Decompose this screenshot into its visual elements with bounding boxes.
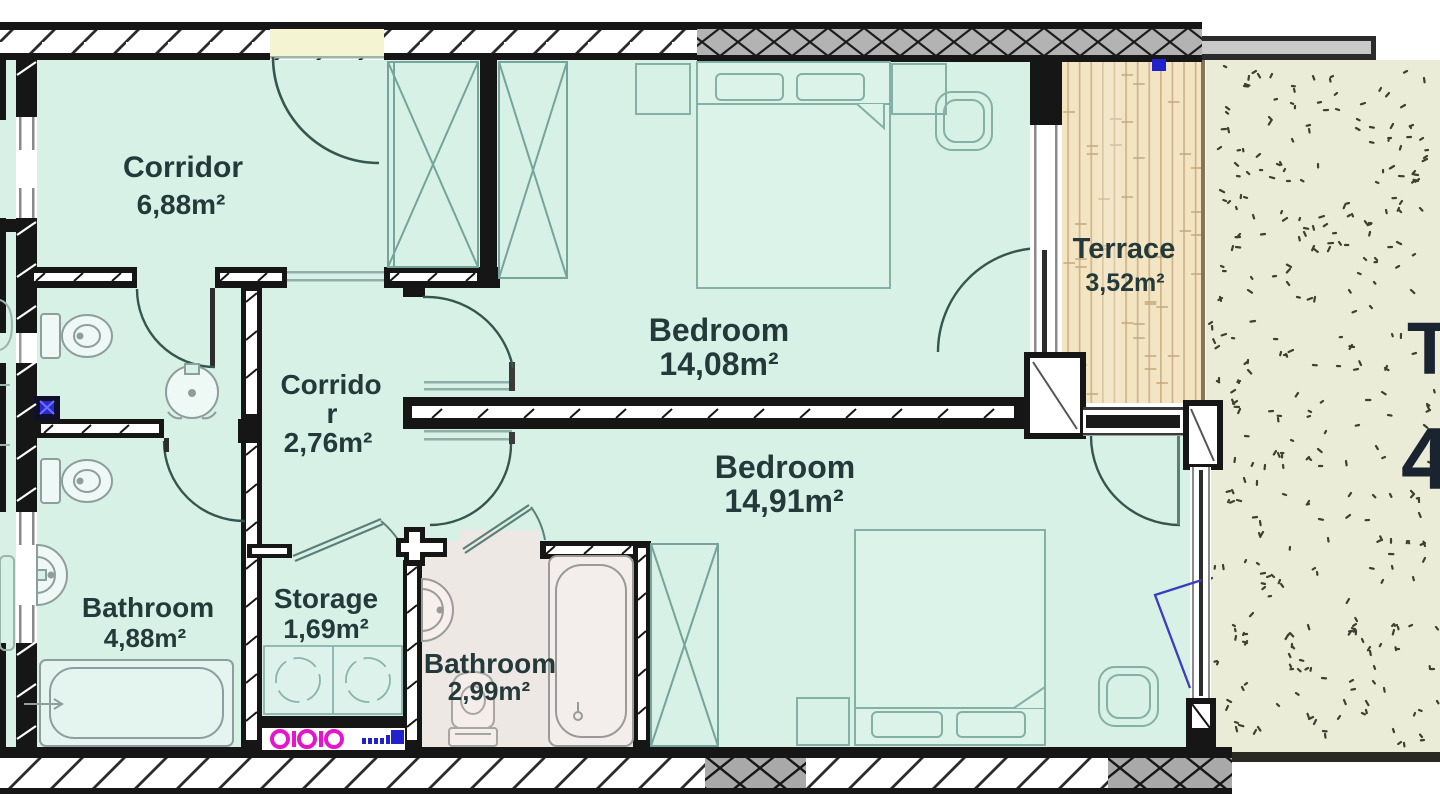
svg-text:14,08m²: 14,08m²: [659, 346, 778, 382]
svg-text:6,88m²: 6,88m²: [137, 189, 226, 220]
svg-text:2,99m²: 2,99m²: [448, 676, 531, 706]
svg-text:Corrido: Corrido: [280, 369, 381, 400]
svg-text:Storage: Storage: [274, 583, 378, 614]
svg-text:1,69m²: 1,69m²: [283, 614, 369, 644]
svg-text:T: T: [1407, 307, 1440, 390]
svg-text:Corridor: Corridor: [123, 151, 243, 184]
svg-text:4: 4: [1401, 409, 1440, 508]
svg-text:Terrace: Terrace: [1073, 233, 1176, 265]
svg-text:Bathroom: Bathroom: [424, 648, 556, 679]
svg-text:4,88m²: 4,88m²: [104, 623, 187, 653]
svg-text:14,91m²: 14,91m²: [724, 483, 843, 519]
svg-text:Bedroom: Bedroom: [649, 312, 789, 348]
svg-text:Bathroom: Bathroom: [82, 592, 214, 623]
svg-text:Bedroom: Bedroom: [715, 449, 855, 485]
svg-text:3,52m²: 3,52m²: [1085, 269, 1164, 297]
svg-text:r: r: [327, 398, 338, 429]
svg-text:2,76m²: 2,76m²: [284, 427, 373, 458]
